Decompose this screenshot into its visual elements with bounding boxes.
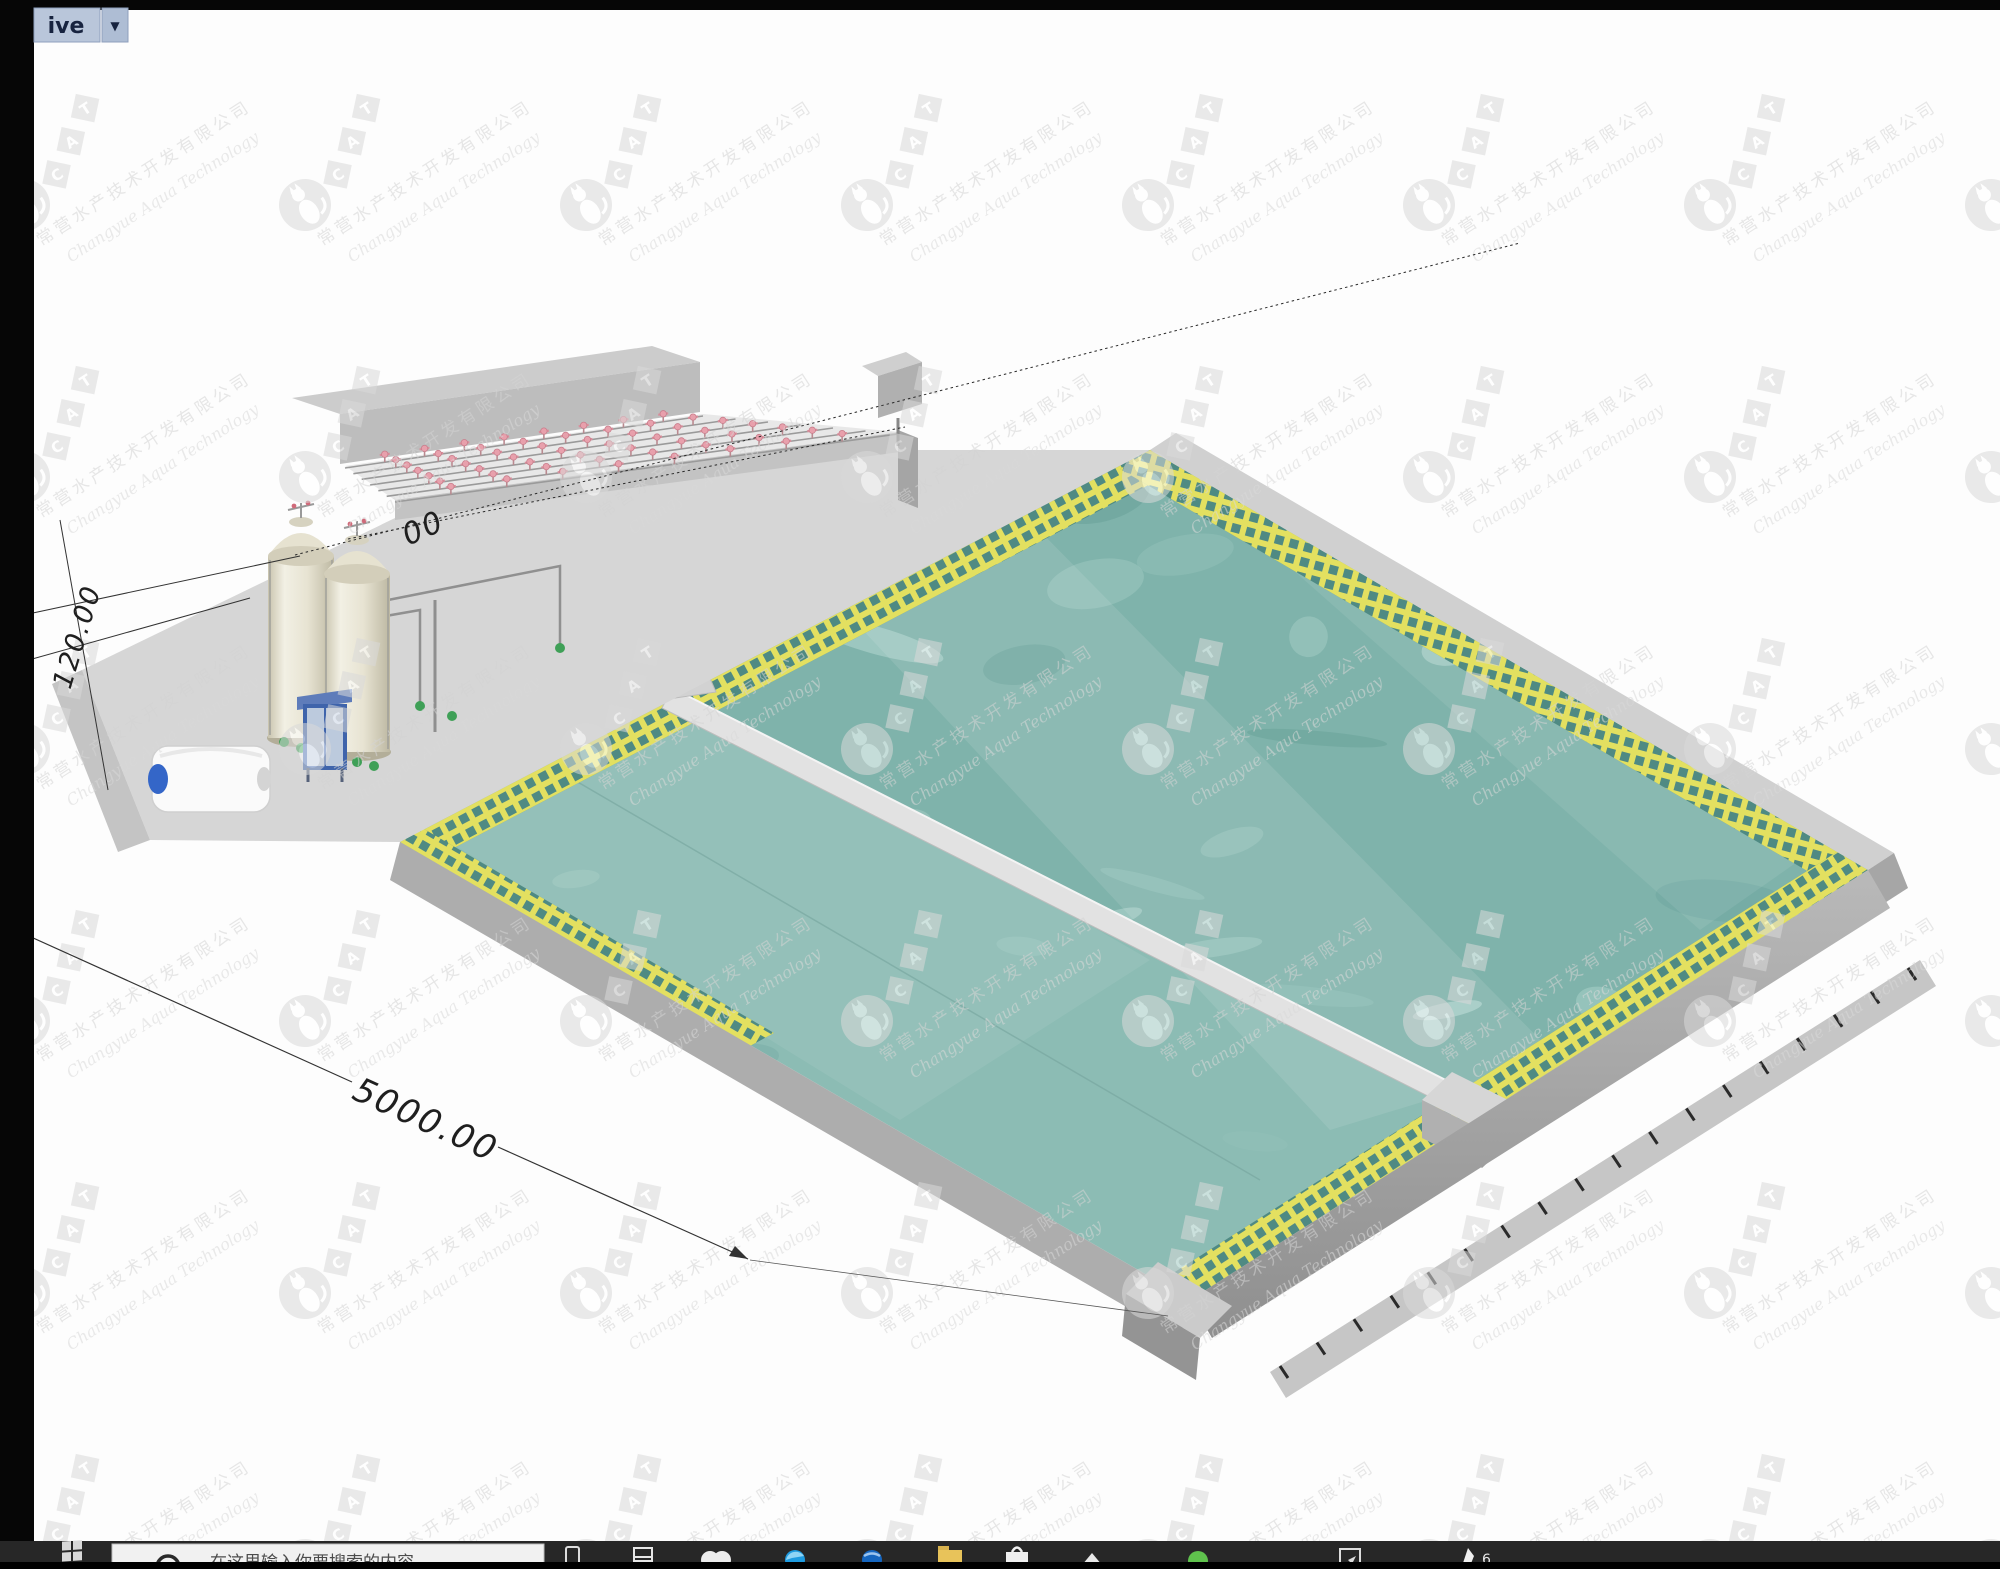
- pump-unit: [148, 746, 271, 812]
- toolbar-button-label: ive: [48, 14, 85, 39]
- taskbar[interactable]: 在这里输入你要搜索的内容: [0, 1540, 2000, 1569]
- windows-logo-icon: [62, 1541, 71, 1551]
- windows-logo-icon: [62, 1552, 71, 1562]
- application-window: C A T 常营水产技术开发有限公司 Changyue Aqua Technol…: [0, 0, 2000, 1569]
- window-top-edge: [0, 0, 2000, 10]
- pipe-valve: [555, 643, 565, 653]
- windows-logo-icon: [73, 1540, 82, 1550]
- window-left-edge: [0, 0, 34, 1569]
- toolbar-button-group[interactable]: ive ▼: [34, 8, 128, 42]
- chevron-down-icon: ▼: [110, 19, 120, 33]
- screen-bottom-edge: [0, 1562, 2000, 1569]
- windows-logo-icon: [73, 1551, 82, 1561]
